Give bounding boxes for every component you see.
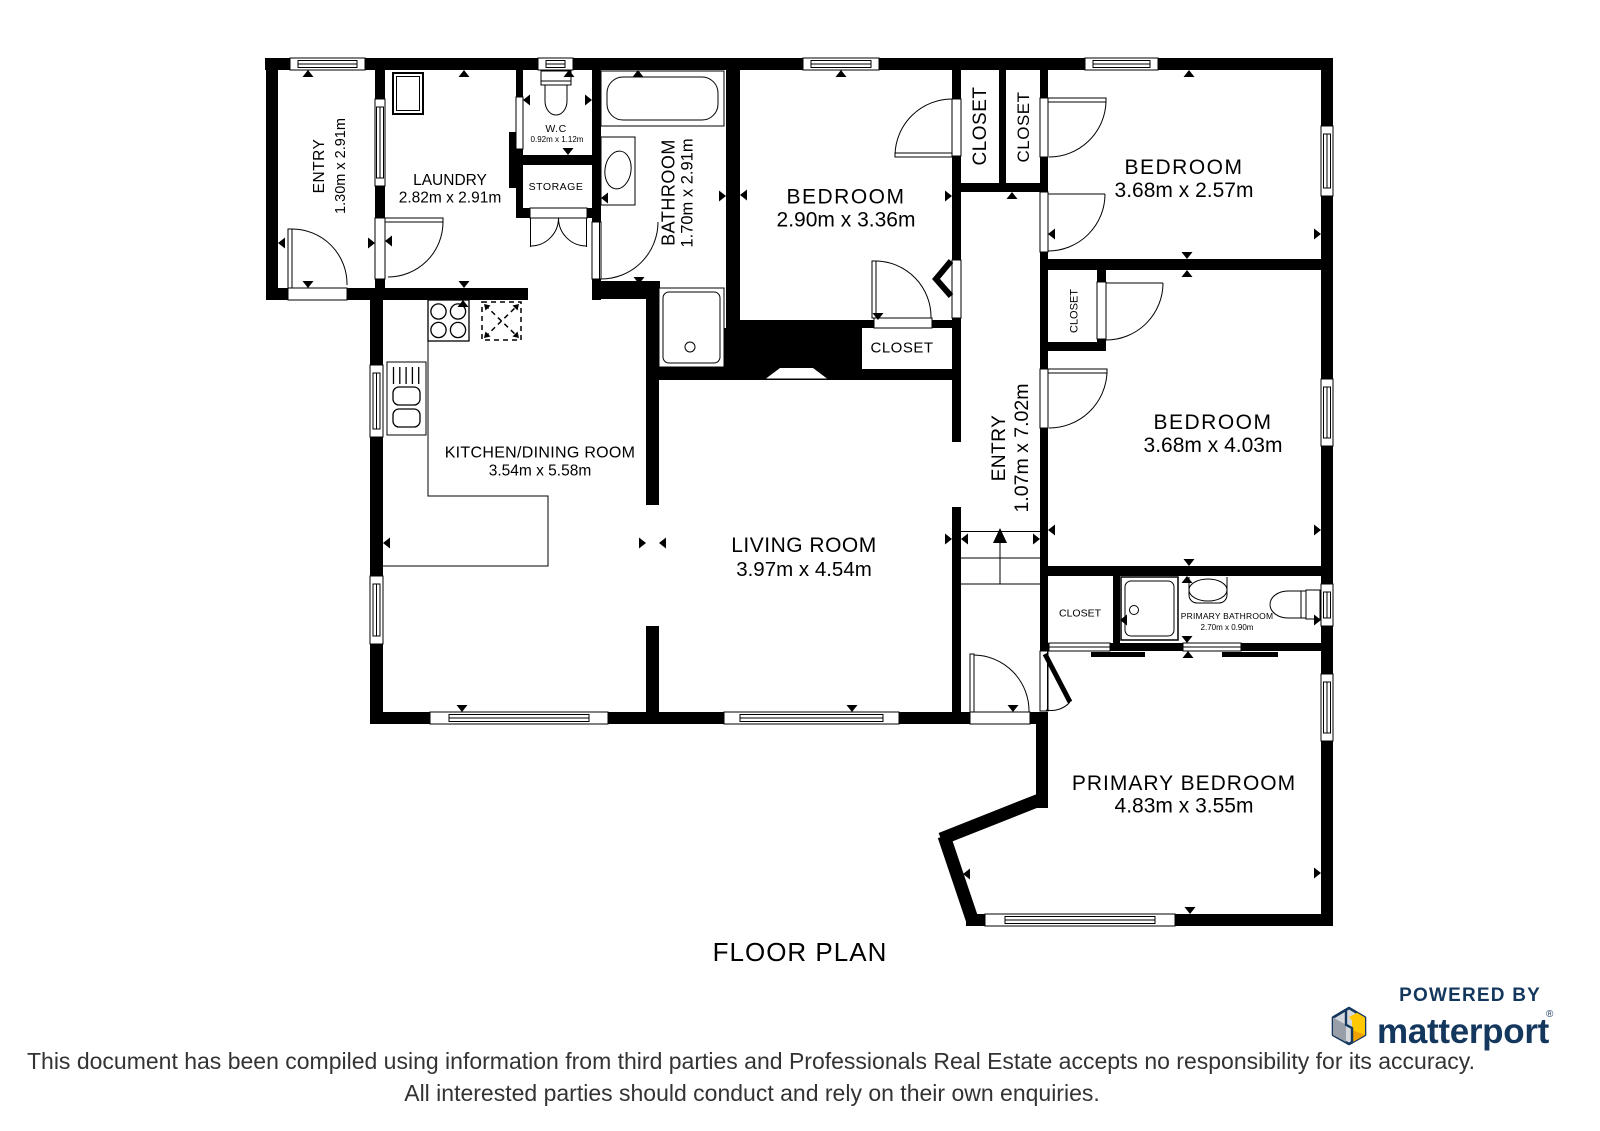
svg-text:CLOSET: CLOSET — [970, 86, 991, 165]
svg-text:BATHROOM: BATHROOM — [659, 139, 679, 246]
svg-text:STORAGE: STORAGE — [529, 181, 584, 193]
svg-text:0.92m x 1.12m: 0.92m x 1.12m — [531, 135, 584, 144]
svg-text:CLOSET: CLOSET — [870, 340, 933, 357]
svg-text:PRIMARY BATHROOM: PRIMARY BATHROOM — [1181, 611, 1273, 621]
svg-text:®: ® — [1546, 1009, 1554, 1020]
svg-text:2.90m x 3.36m: 2.90m x 3.36m — [777, 209, 916, 232]
svg-text:BEDROOM: BEDROOM — [1153, 411, 1272, 434]
svg-text:KITCHEN/DINING ROOM: KITCHEN/DINING ROOM — [445, 445, 636, 462]
svg-text:ENTRY: ENTRY — [311, 139, 328, 194]
svg-text:W.C: W.C — [545, 123, 566, 135]
svg-text:PRIMARY BEDROOM: PRIMARY BEDROOM — [1072, 772, 1296, 795]
svg-text:3.97m x 4.54m: 3.97m x 4.54m — [736, 558, 872, 581]
svg-text:LAUNDRY: LAUNDRY — [413, 172, 487, 189]
svg-text:CLOSET: CLOSET — [1059, 608, 1102, 620]
svg-text:CLOSET: CLOSET — [1014, 91, 1033, 162]
svg-text:3.54m x 5.58m: 3.54m x 5.58m — [489, 463, 592, 480]
svg-text:2.70m x 0.90m: 2.70m x 0.90m — [1201, 623, 1254, 632]
svg-text:1.30m x 2.91m: 1.30m x 2.91m — [333, 118, 349, 214]
svg-text:This document has been compile: This document has been compiled using in… — [27, 1048, 1475, 1074]
svg-text:POWERED BY: POWERED BY — [1399, 985, 1541, 1006]
svg-text:LIVING ROOM: LIVING ROOM — [731, 534, 877, 557]
svg-text:1.70m x 2.91m: 1.70m x 2.91m — [679, 138, 697, 247]
svg-text:1.07m x 7.02m: 1.07m x 7.02m — [1011, 384, 1033, 513]
svg-text:3.68m x 4.03m: 3.68m x 4.03m — [1144, 434, 1283, 457]
svg-text:FLOOR PLAN: FLOOR PLAN — [713, 937, 888, 967]
svg-text:4.83m x 3.55m: 4.83m x 3.55m — [1115, 795, 1254, 818]
svg-text:BEDROOM: BEDROOM — [786, 186, 905, 209]
svg-text:3.68m x 2.57m: 3.68m x 2.57m — [1115, 179, 1254, 202]
svg-text:ENTRY: ENTRY — [989, 415, 1010, 482]
svg-text:All interested parties should: All interested parties should conduct an… — [404, 1080, 1100, 1106]
svg-text:BEDROOM: BEDROOM — [1124, 156, 1243, 179]
svg-text:matterport: matterport — [1377, 1012, 1550, 1051]
svg-text:CLOSET: CLOSET — [1069, 289, 1081, 333]
svg-text:2.82m x 2.91m: 2.82m x 2.91m — [399, 190, 502, 207]
